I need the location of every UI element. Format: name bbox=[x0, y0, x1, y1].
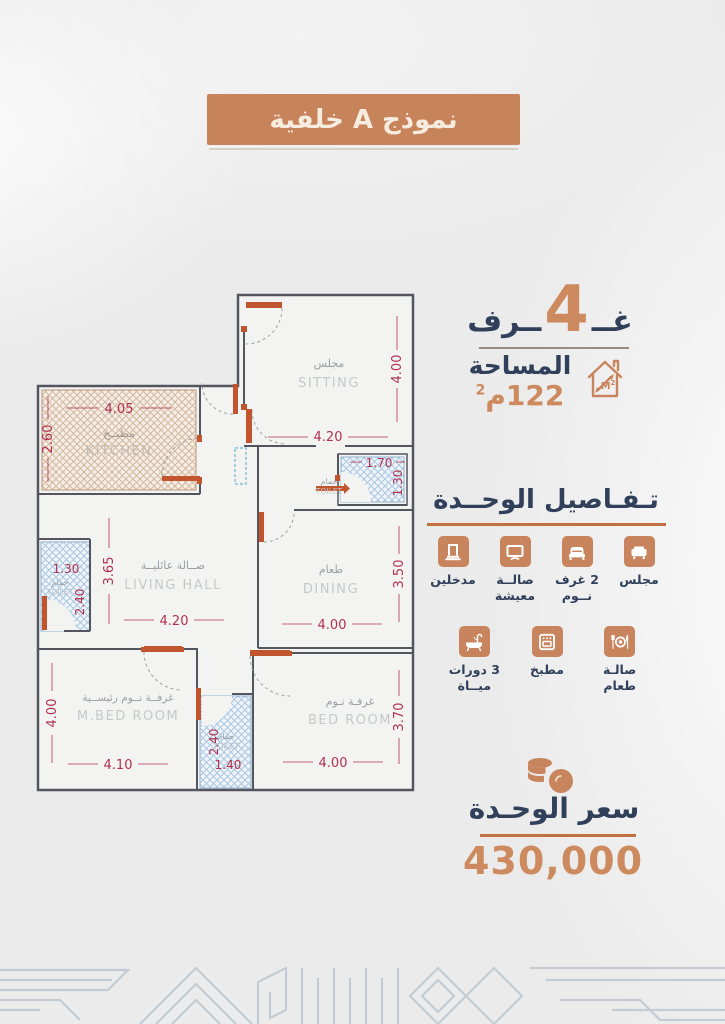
sitting-door-bottom bbox=[246, 409, 252, 443]
dim-toilet-left-height: 2.40 bbox=[73, 589, 87, 616]
toilet-left-door bbox=[42, 596, 47, 630]
geometric-border-pattern bbox=[0, 952, 725, 1024]
room-label-dining-ar: طعام bbox=[319, 563, 343, 576]
room-label-bed-en: BED ROOM bbox=[308, 713, 392, 728]
flyer-page: نموذج A خلفية bbox=[0, 0, 725, 1024]
detail-label-bedrooms: 2 غرف نــوم bbox=[555, 572, 599, 605]
detail-item-majlis: مجلس bbox=[608, 536, 670, 605]
dim-bed-height: 3.70 bbox=[392, 703, 407, 732]
detail-item-bedrooms: 2 غرف نــوم bbox=[546, 536, 608, 605]
detail-item-entrances: مدخلين bbox=[422, 536, 484, 605]
area-value: 122م2 bbox=[456, 380, 584, 412]
area-house-icon: M2 bbox=[586, 356, 624, 400]
price-value: 430,000 bbox=[428, 839, 678, 883]
room-label-toilet-bottom-en: TOILET bbox=[212, 742, 240, 751]
details-row-2: صالـة طعام مطبخ bbox=[438, 626, 656, 695]
detail-label-kitchen: مطبخ bbox=[530, 662, 564, 678]
kitchen-oven-icon bbox=[532, 626, 563, 657]
sitting-door-top bbox=[246, 302, 282, 308]
dim-mbed-width: 4.10 bbox=[104, 758, 133, 773]
bathrooms-tub-icon bbox=[459, 626, 490, 657]
dim-sitting-width: 4.20 bbox=[314, 430, 343, 445]
area-label: المساحة bbox=[456, 352, 584, 380]
bedroom-door bbox=[250, 650, 290, 656]
model-badge: نموذج A خلفية bbox=[207, 94, 520, 145]
badge-underline bbox=[209, 148, 518, 150]
dim-living-width: 4.20 bbox=[160, 614, 189, 629]
room-label-mbed-en: M.BED ROOM bbox=[77, 709, 179, 724]
room-label-toilet-bottom-ar: حمام bbox=[218, 732, 235, 741]
room-label-living-ar: صــالة عائليــة bbox=[141, 559, 205, 572]
entry-door bbox=[233, 384, 238, 414]
model-badge-label: نموذج A خلفية bbox=[269, 105, 457, 135]
room-label-mbed-ar: غرفــة نــوم رئيســية bbox=[82, 692, 174, 704]
room-label-living-en: LIVING HALL bbox=[124, 578, 221, 593]
dim-toilet-top-height: 1.30 bbox=[391, 470, 405, 497]
room-label-toilet-top-en: TOILET bbox=[315, 487, 343, 496]
detail-item-kitchen: مطبخ bbox=[511, 626, 584, 695]
details-title: تـفـاصيل الوحــدة bbox=[424, 485, 668, 515]
dim-living-height: 3.65 bbox=[102, 557, 117, 586]
kitchen-door bbox=[162, 476, 200, 481]
room-label-toilet-left-en: TOILET bbox=[46, 588, 74, 597]
room-label-sitting-en: SITTING bbox=[298, 376, 360, 391]
detail-label-dining: صالـة طعام bbox=[603, 662, 636, 695]
dim-toilet-bottom-width: 1.40 bbox=[215, 758, 242, 772]
toilet-bottom-door bbox=[196, 688, 201, 720]
entrances-door-icon bbox=[438, 536, 469, 567]
detail-item-living: صالــة معيشة bbox=[484, 536, 546, 605]
room-label-toilet-left-ar: حمام bbox=[52, 578, 69, 587]
dim-mbed-height: 4.00 bbox=[45, 699, 60, 728]
bedrooms-bed-icon bbox=[562, 536, 593, 567]
floor-plan: 4.05 2.60 4.20 4.00 1.70 1.30 4.20 3.65 … bbox=[28, 276, 440, 798]
price-label: سعر الوحـدة bbox=[438, 792, 670, 825]
rooms-word-suffix: ــرف bbox=[467, 304, 541, 339]
dim-kitchen-height: 2.60 bbox=[41, 425, 56, 454]
room-label-bed-ar: غرفـة نـوم bbox=[326, 695, 375, 708]
detail-label-majlis: مجلس bbox=[619, 572, 659, 588]
rooms-count: غــ 4 ــرف bbox=[455, 280, 645, 341]
majlis-sofa-icon bbox=[624, 536, 655, 567]
coins-icon bbox=[524, 756, 576, 796]
dim-sitting-height: 4.00 bbox=[390, 355, 405, 384]
dim-toilet-top-width: 1.70 bbox=[366, 456, 393, 470]
detail-label-entrances: مدخلين bbox=[430, 572, 475, 588]
detail-item-dining: صالـة طعام bbox=[583, 626, 656, 695]
room-label-kitchen-ar: مطبــخ bbox=[103, 427, 135, 440]
details-title-underline bbox=[427, 523, 666, 526]
detail-item-bathrooms: 3 دورات ميــاة bbox=[438, 626, 511, 695]
area-block: المساحة 122م2 bbox=[456, 352, 584, 412]
living-tv-icon bbox=[500, 536, 531, 567]
dim-dining-width: 4.00 bbox=[318, 618, 347, 633]
rooms-divider bbox=[479, 347, 629, 349]
room-label-toilet-top-ar: حمام bbox=[321, 477, 338, 486]
rooms-word-prefix: غــ bbox=[592, 304, 633, 339]
dining-door bbox=[259, 512, 264, 542]
dim-toilet-left-width: 1.30 bbox=[53, 562, 80, 576]
room-label-sitting-ar: مجلس bbox=[314, 357, 345, 370]
price-divider bbox=[480, 834, 636, 837]
dim-bed-width: 4.00 bbox=[319, 756, 348, 771]
mbed-door bbox=[144, 646, 182, 652]
dim-kitchen-width: 4.05 bbox=[105, 402, 134, 417]
svg-text:M2: M2 bbox=[601, 379, 616, 392]
details-row-1: مجلس 2 غرف نــوم صالــة معيشة bbox=[422, 536, 670, 605]
detail-label-living: صالــة معيشة bbox=[495, 572, 535, 605]
detail-label-bathrooms: 3 دورات ميــاة bbox=[449, 662, 500, 695]
room-label-dining-en: DINING bbox=[303, 582, 359, 597]
dining-plate-icon bbox=[604, 626, 635, 657]
rooms-count-number: 4 bbox=[544, 280, 589, 341]
room-label-kitchen-en: KITCHEN bbox=[86, 444, 153, 459]
dim-dining-height: 3.50 bbox=[392, 560, 407, 589]
